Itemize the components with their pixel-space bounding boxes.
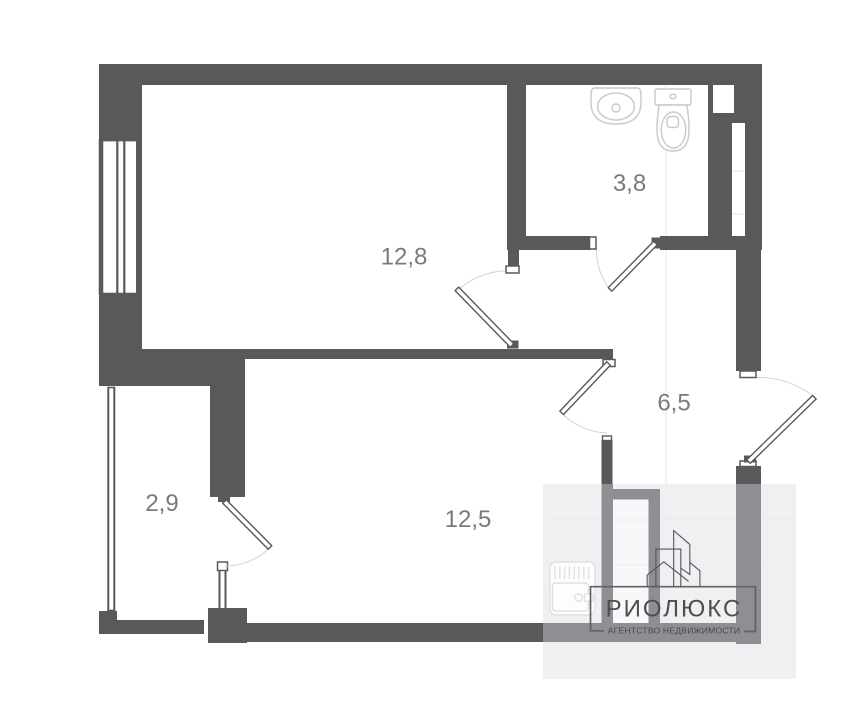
svg-text:12,5: 12,5 xyxy=(445,506,492,533)
svg-text:РИОЛЮКС: РИОЛЮКС xyxy=(606,596,743,623)
svg-text:3,8: 3,8 xyxy=(613,170,646,197)
svg-text:6,5: 6,5 xyxy=(657,390,690,417)
svg-text:12,8: 12,8 xyxy=(381,244,428,271)
svg-text:АГЕНТСТВО НЕДВИЖИМОСТИ: АГЕНТСТВО НЕДВИЖИМОСТИ xyxy=(608,626,741,636)
svg-text:2,9: 2,9 xyxy=(145,490,178,517)
